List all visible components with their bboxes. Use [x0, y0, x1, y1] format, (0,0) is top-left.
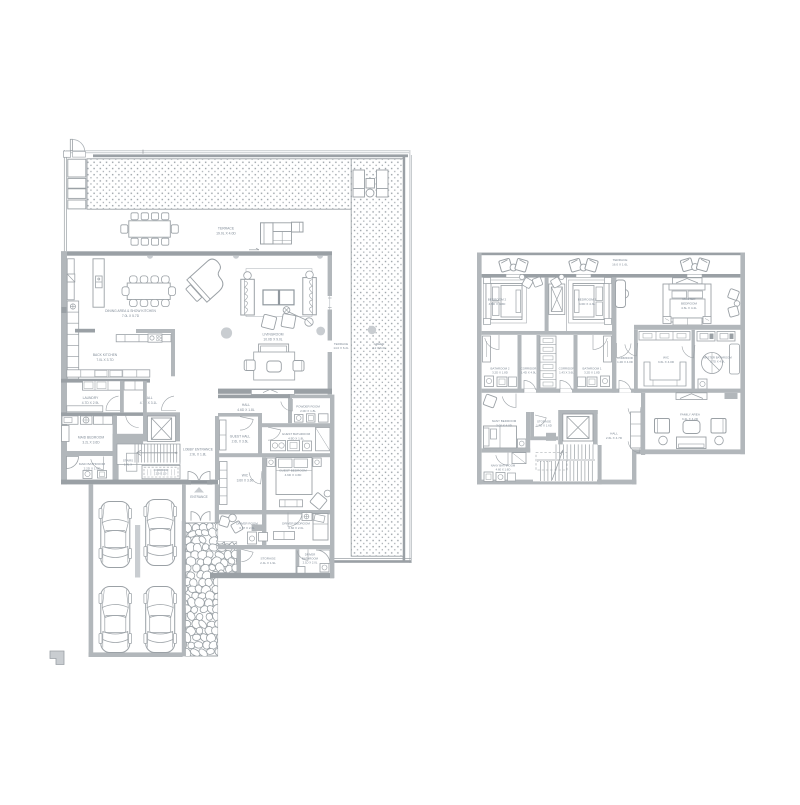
svg-text:STORAGE2.4L X 1.9L: STORAGE2.4L X 1.9L	[260, 557, 276, 566]
svg-text:STORAGE1.7D X 1.6D: STORAGE1.7D X 1.6D	[536, 420, 552, 428]
svg-text:BEDROOM 14.6D X 4.3L: BEDROOM 14.6D X 4.3L	[578, 298, 597, 307]
svg-text:CORRIDOR1.43 X 3.6L: CORRIDOR1.43 X 3.6L	[559, 367, 575, 375]
svg-text:LIVINGROOM10.0D X 9.0L: LIVINGROOM10.0D X 9.0L	[262, 333, 283, 342]
svg-text:GREEN4.2 X 6.0L: GREEN4.2 X 6.0L	[372, 342, 386, 350]
svg-text:CORRIDOR1.4D X 4.9L: CORRIDOR1.4D X 4.9L	[521, 367, 537, 375]
svg-text:GUEST HALL2.6L X 3.6L: GUEST HALL2.6L X 3.6L	[230, 435, 251, 444]
svg-text:CORRIDOR2.9 X 1.0: CORRIDOR2.9 X 1.0	[154, 468, 169, 476]
svg-text:FAMILY AREA3.2L X 4.2D: FAMILY AREA3.2L X 4.2D	[680, 413, 701, 422]
svg-text:BATHROOM 23.2D X 1.8D: BATHROOM 23.2D X 1.8D	[491, 367, 510, 375]
svg-text:BATHROOM 13.2D X 1.8D: BATHROOM 13.2D X 1.8D	[583, 367, 602, 375]
svg-text:TERRACE14.0 X 6.2L: TERRACE14.0 X 6.2L	[333, 342, 349, 350]
svg-text:TERRACE16.0 X 1.6L: TERRACE16.0 X 1.6L	[612, 258, 628, 267]
svg-text:STAIRS1.4L X: STAIRS1.4L X	[123, 459, 133, 467]
svg-text:LAUNDRY4.7D X 2.9L: LAUNDRY4.7D X 2.9L	[82, 396, 100, 405]
svg-text:MASTERBEDROOM4.6L X 4.4L: MASTERBEDROOM4.6L X 4.4L	[681, 297, 697, 310]
svg-text:TERRACE19.0L X 4.0D: TERRACE19.0L X 4.0D	[216, 227, 236, 236]
svg-text:BEDROOM 24.6D X 4.6D: BEDROOM 24.6D X 4.6D	[488, 298, 507, 307]
svg-text:ENTRANCE: ENTRANCE	[190, 495, 208, 499]
